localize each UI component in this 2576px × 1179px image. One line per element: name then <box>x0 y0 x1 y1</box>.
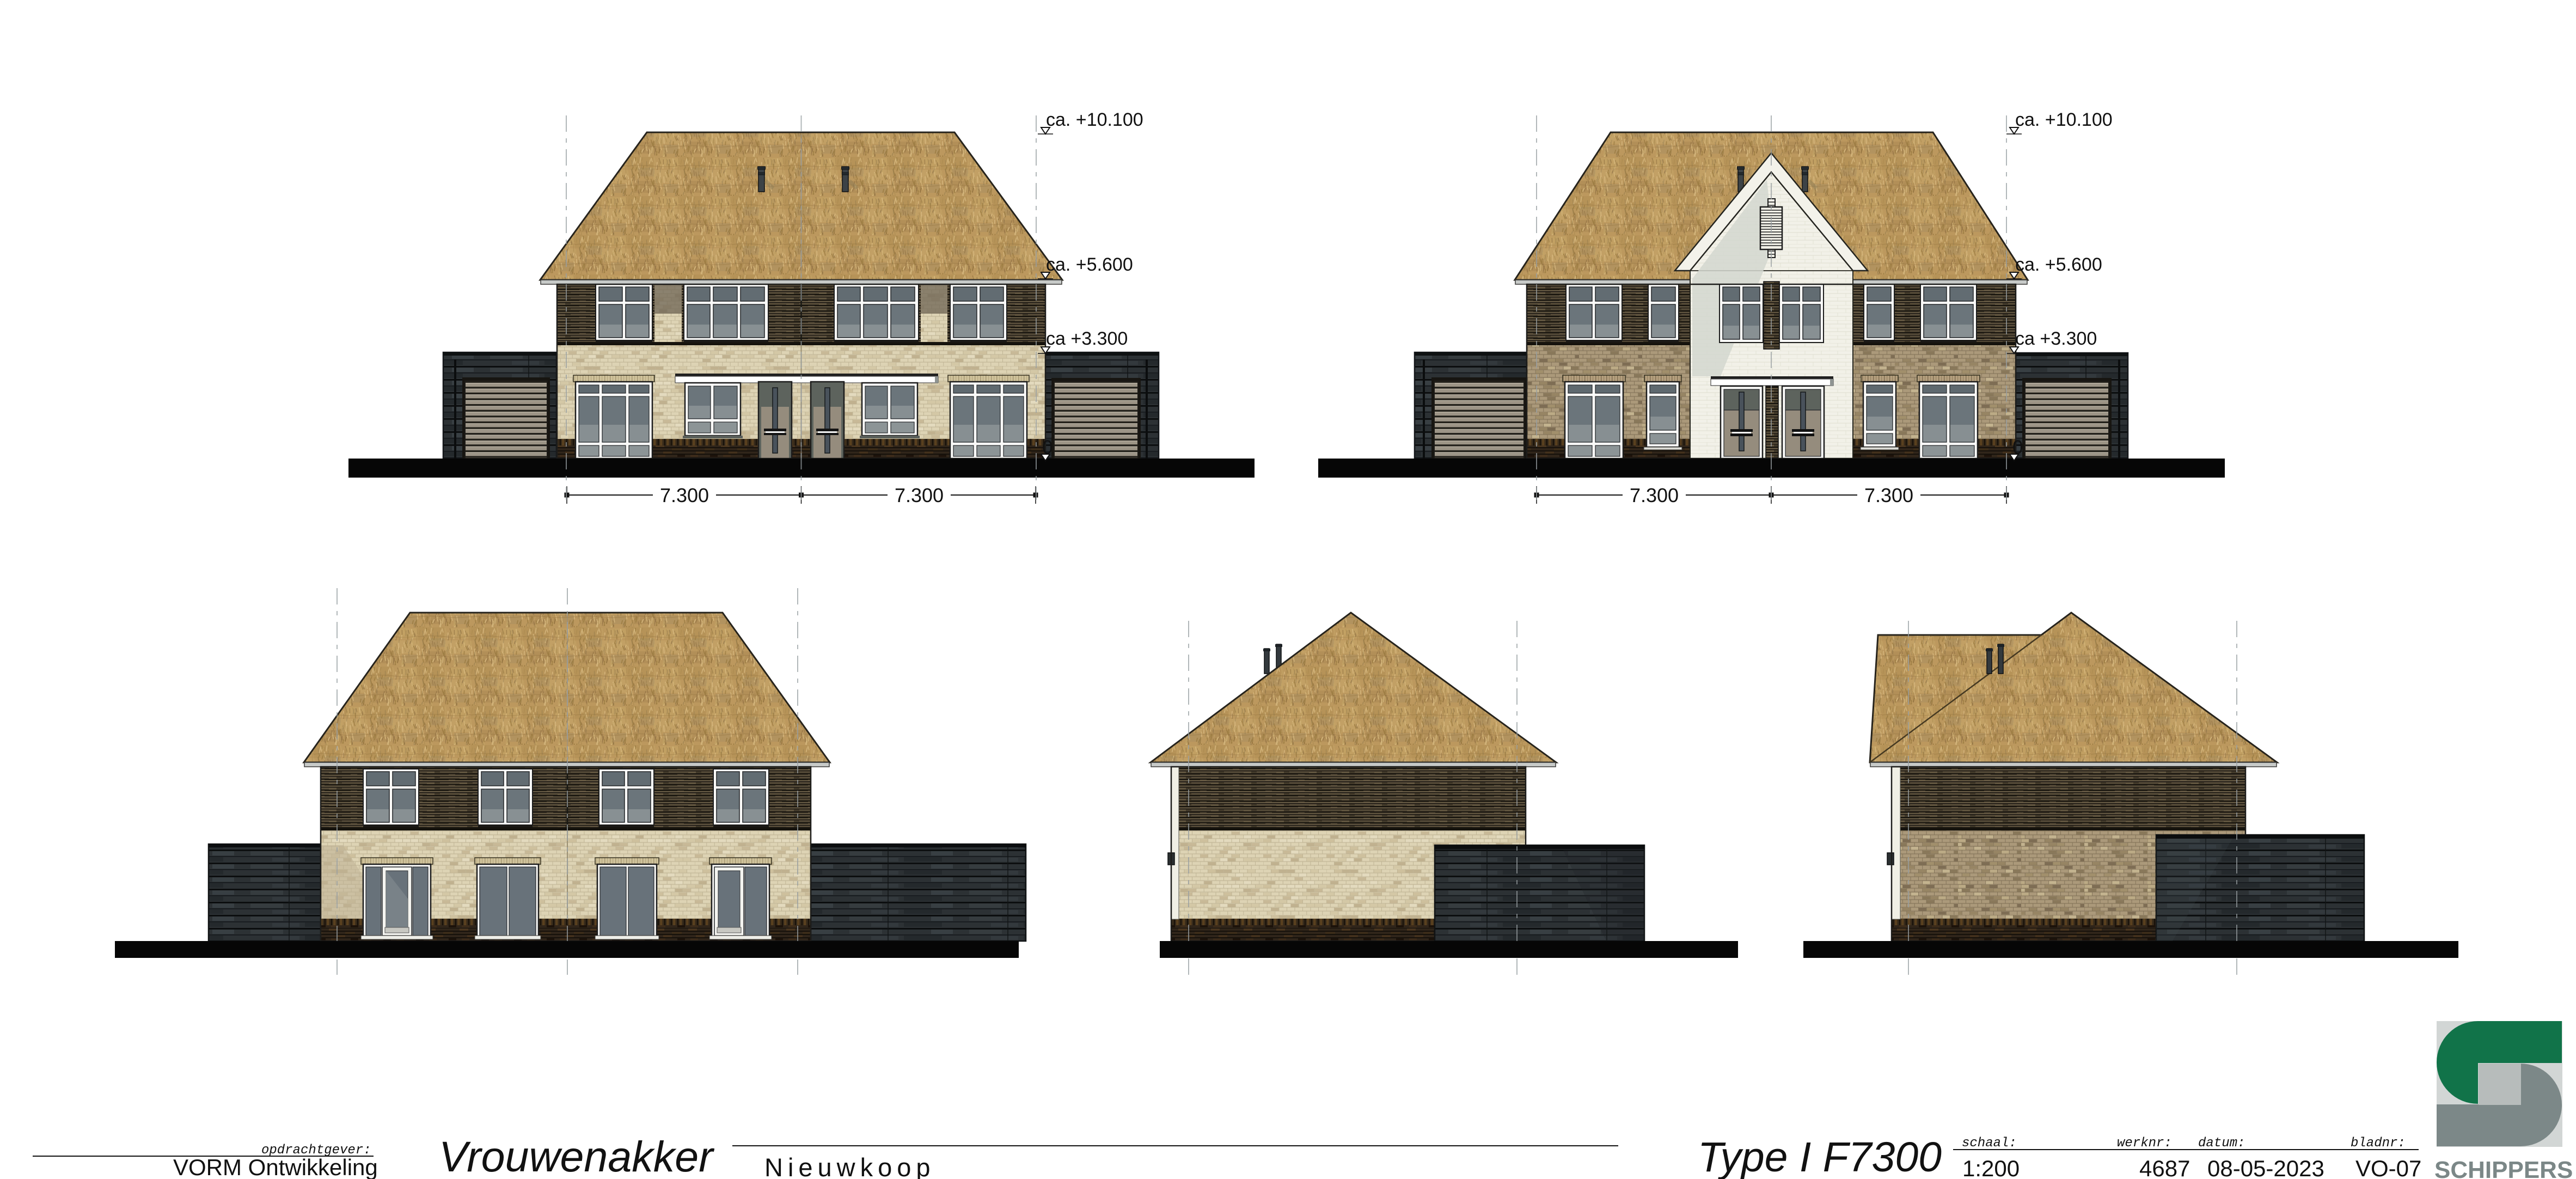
svg-text:SCHIPPERS: SCHIPPERS <box>2434 1157 2573 1179</box>
svg-text:08-05-2023: 08-05-2023 <box>2207 1156 2324 1179</box>
svg-text:4687: 4687 <box>2139 1156 2190 1179</box>
svg-text:VO-07: VO-07 <box>2355 1156 2421 1179</box>
svg-text:1:200: 1:200 <box>1962 1156 2020 1179</box>
svg-text:datum:: datum: <box>2198 1136 2245 1151</box>
svg-text:7.300: 7.300 <box>895 484 944 506</box>
svg-text:ca +3.300: ca +3.300 <box>2015 328 2097 349</box>
svg-text:7.300: 7.300 <box>1630 484 1679 506</box>
svg-text:7.300: 7.300 <box>660 484 709 506</box>
svg-text:ca +3.300: ca +3.300 <box>1046 328 1128 349</box>
svg-text:schaal:: schaal: <box>1962 1136 2017 1151</box>
svg-text:Vrouwenakker: Vrouwenakker <box>439 1132 714 1179</box>
svg-text:ca. +10.100: ca. +10.100 <box>2015 109 2113 130</box>
svg-text:Type I F7300: Type I F7300 <box>1698 1134 1942 1179</box>
svg-text:ca. +5.600: ca. +5.600 <box>2015 254 2102 275</box>
svg-text:VORM Ontwikkeling: VORM Ontwikkeling <box>173 1154 378 1179</box>
svg-text:Nieuwkoop: Nieuwkoop <box>764 1153 935 1179</box>
svg-text:werknr:: werknr: <box>2117 1136 2172 1151</box>
svg-text:7.300: 7.300 <box>1864 484 1913 506</box>
svg-text:ca. +10.100: ca. +10.100 <box>1046 109 1143 130</box>
svg-text:ca. +5.600: ca. +5.600 <box>1046 254 1133 275</box>
svg-text:bladnr:: bladnr: <box>2351 1136 2406 1151</box>
